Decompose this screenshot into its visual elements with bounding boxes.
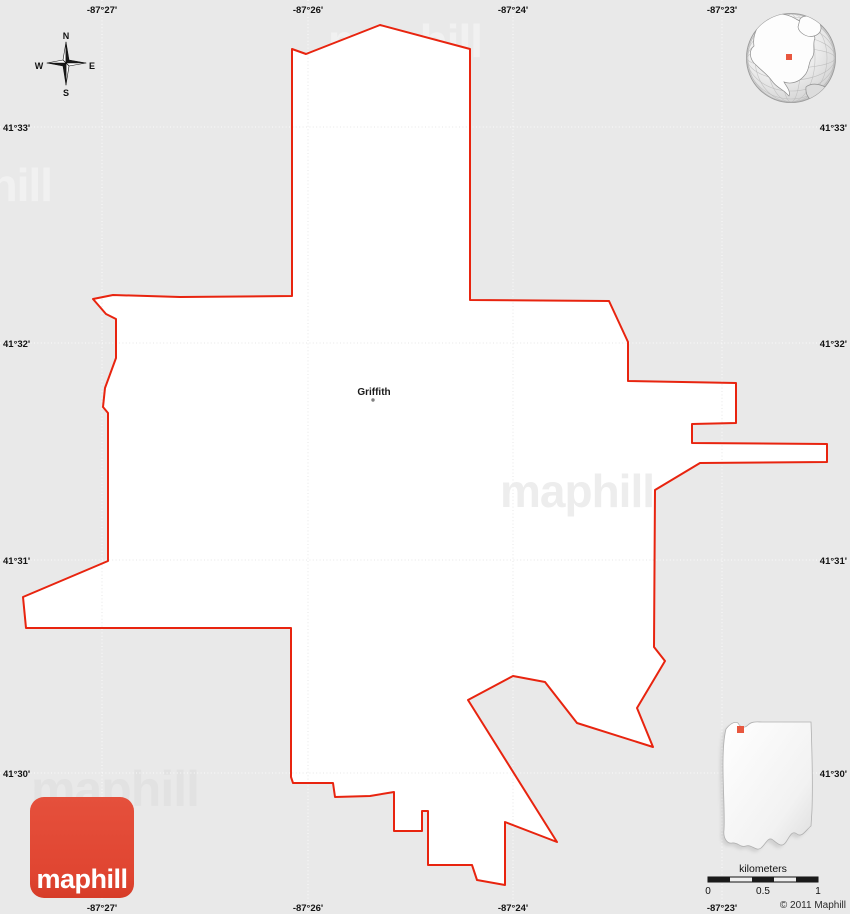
compass-south-label: S: [63, 88, 69, 98]
copyright-notice: © 2011 Maphill: [780, 900, 846, 911]
scale-tick-05: 0.5: [756, 886, 770, 897]
lat-label: 41°33': [820, 123, 847, 134]
lat-label: 41°32': [3, 339, 30, 350]
lon-label: -87°24': [498, 903, 528, 914]
lat-label: 41°31': [3, 556, 30, 567]
lon-label: -87°24': [498, 5, 528, 16]
compass-west-label: W: [35, 61, 44, 71]
maphill-logo-text: maphill: [36, 864, 127, 894]
indiana-inset-map: [720, 722, 812, 852]
lon-label: -87°27': [87, 5, 117, 16]
lon-label: -87°26': [293, 903, 323, 914]
lat-label: 41°32': [820, 339, 847, 350]
lat-label: 41°31': [820, 556, 847, 567]
lat-label: 41°30': [820, 769, 847, 780]
compass-north-label: N: [63, 31, 70, 41]
lat-label: 41°33': [3, 123, 30, 134]
map-canvas: maphill maphill maphill maphill -87°27' …: [0, 0, 850, 914]
maphill-logo[interactable]: maphill: [30, 797, 134, 898]
lon-label: -87°27': [87, 903, 117, 914]
lat-label: 41°30': [3, 769, 30, 780]
map-page: maphill maphill maphill maphill -87°27' …: [0, 0, 850, 914]
globe-location-marker: [786, 54, 792, 60]
city-dot: [371, 398, 374, 401]
scale-tick-0: 0: [705, 886, 711, 897]
lon-label: -87°23': [707, 5, 737, 16]
scale-tick-1: 1: [815, 886, 821, 897]
watermark-center: maphill: [500, 465, 654, 517]
inset-location-marker: [737, 726, 744, 733]
globe-locator-icon: [747, 14, 836, 104]
lon-label: -87°23': [707, 903, 737, 914]
watermark-left: maphill: [0, 159, 52, 211]
inset-state-shape: [723, 722, 812, 849]
scale-units-label: kilometers: [739, 863, 787, 875]
lon-label: -87°26': [293, 5, 323, 16]
city-label: Griffith: [357, 387, 390, 398]
compass-east-label: E: [89, 61, 95, 71]
